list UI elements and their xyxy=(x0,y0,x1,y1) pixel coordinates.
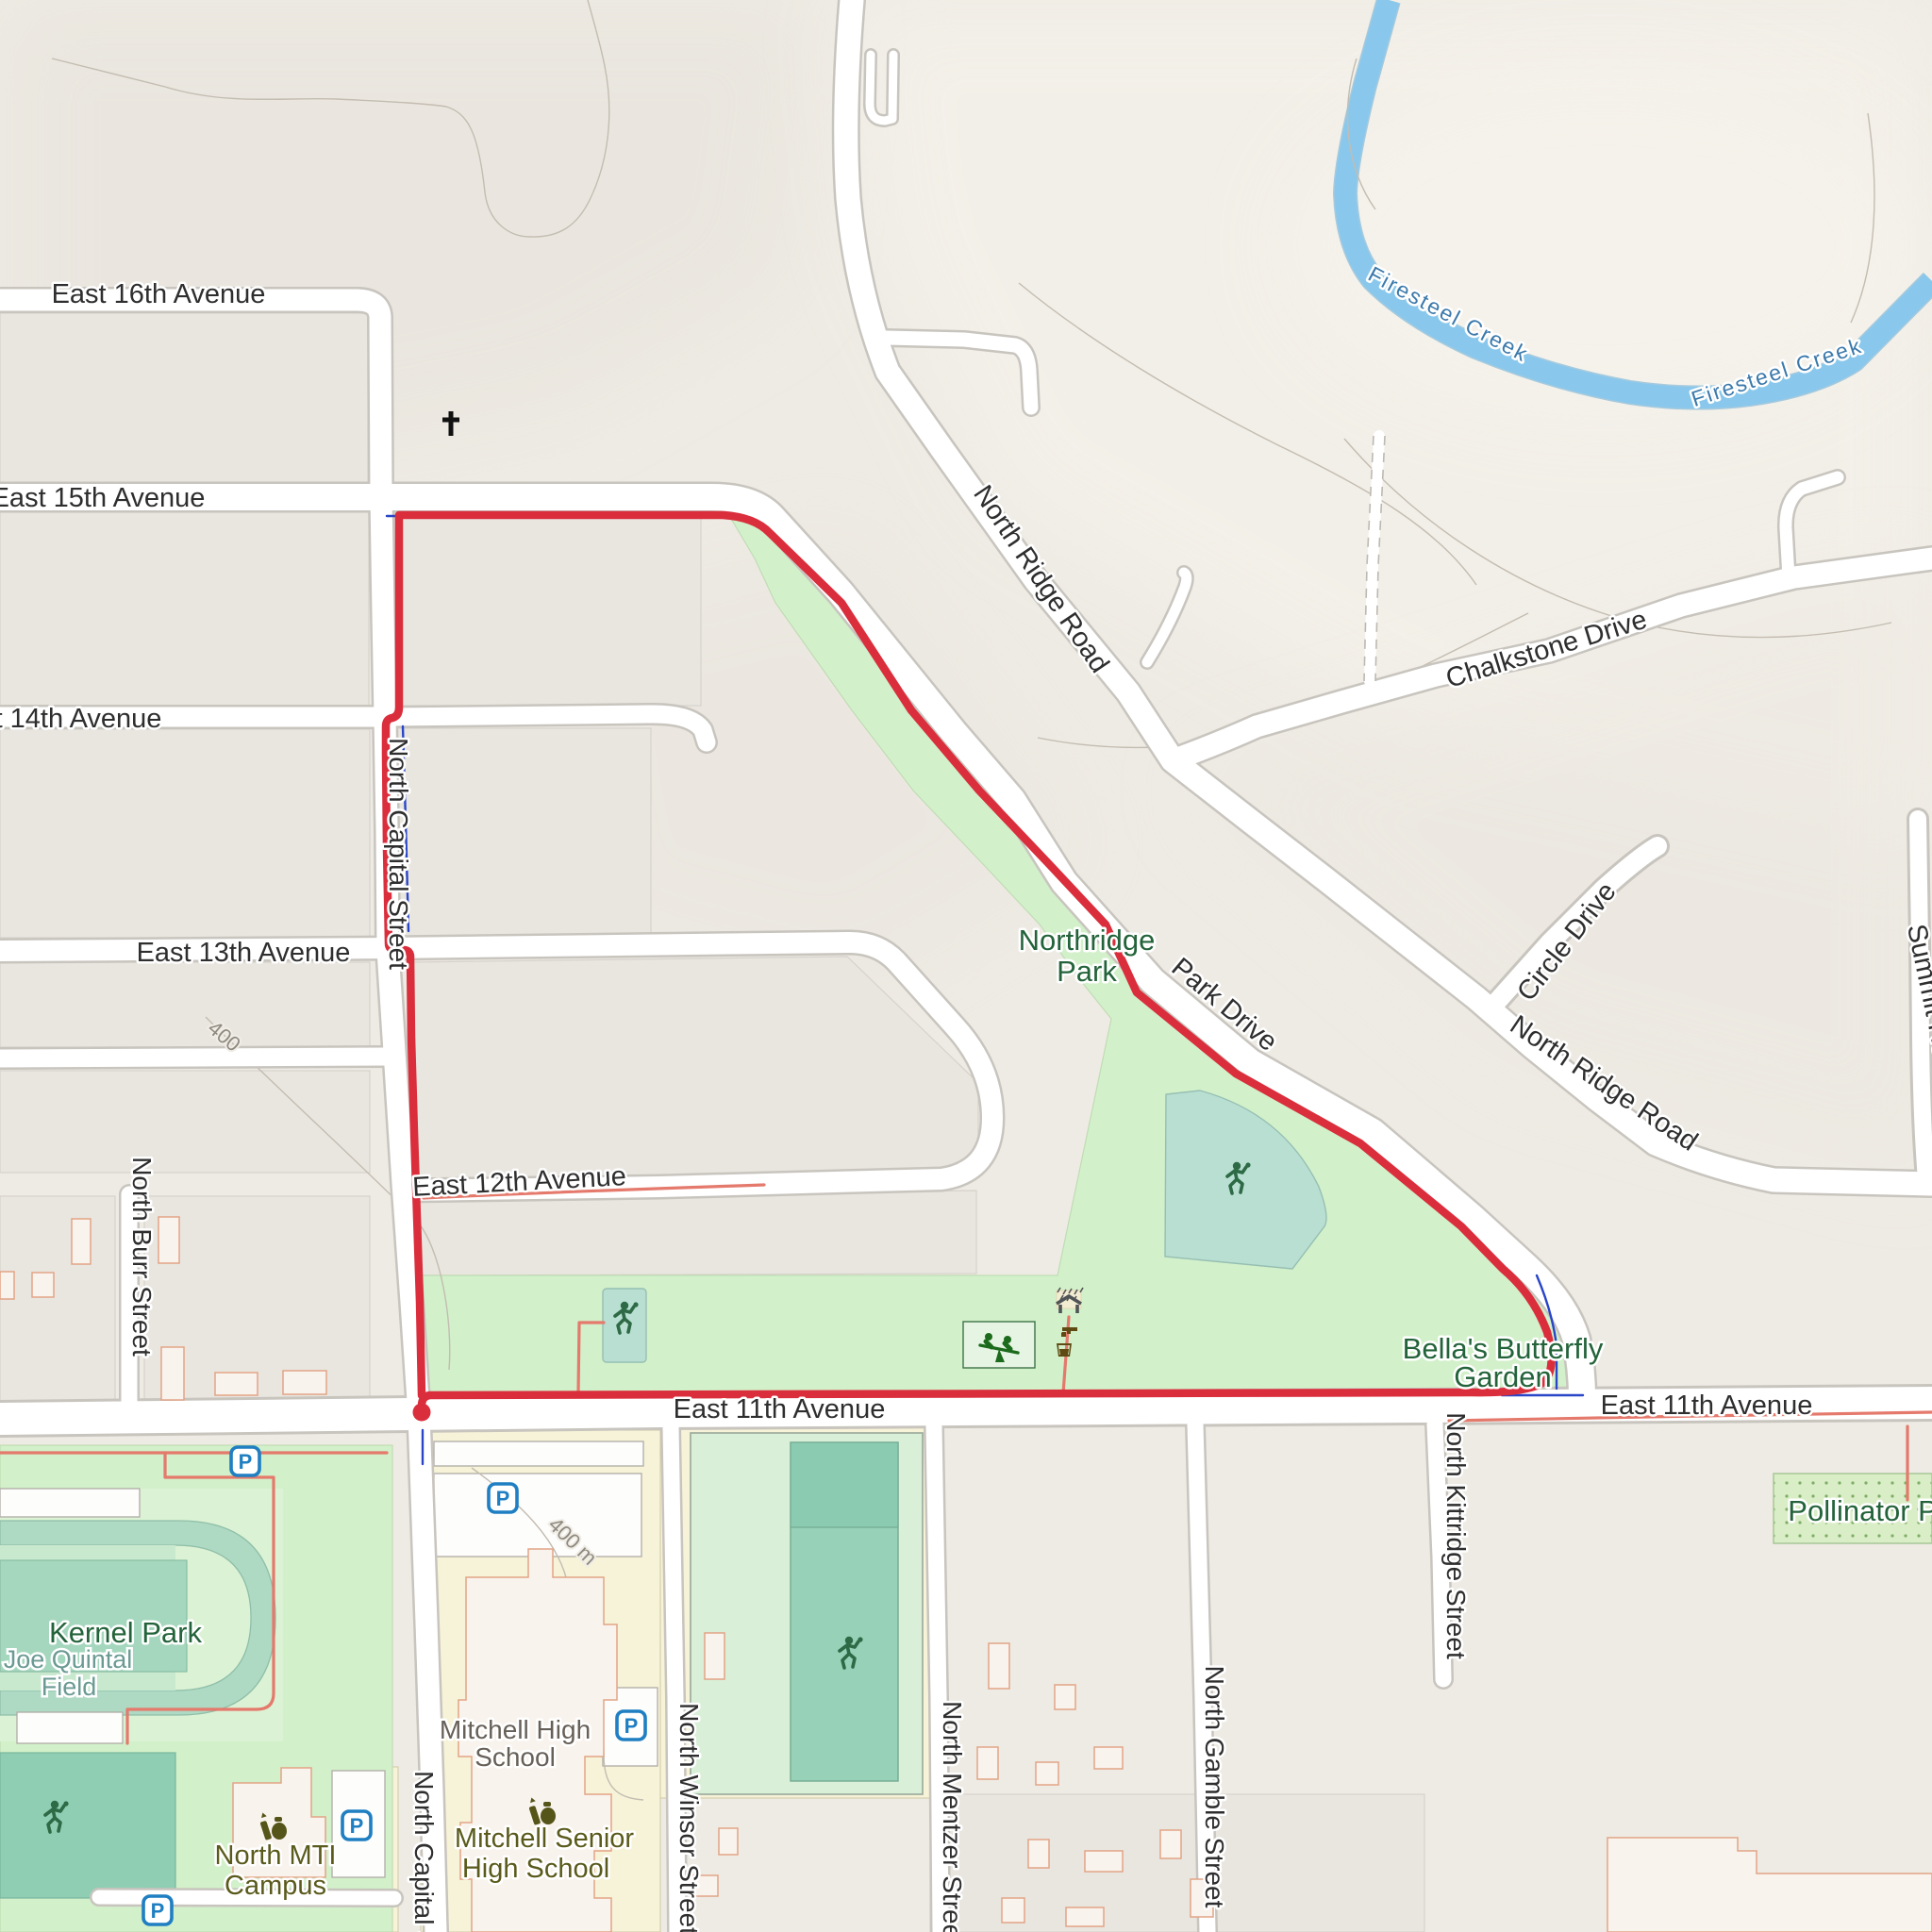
svg-text:North Capital Street: North Capital Street xyxy=(409,1771,439,1932)
svg-text:East 16th Avenue: East 16th Avenue xyxy=(52,279,266,309)
svg-text:North Mentzer Street: North Mentzer Street xyxy=(938,1701,967,1932)
svg-text:Park: Park xyxy=(1057,955,1117,988)
svg-text:Kernel Park: Kernel Park xyxy=(49,1616,202,1649)
svg-text:East 13th Avenue: East 13th Avenue xyxy=(137,938,351,968)
svg-text:School: School xyxy=(475,1742,556,1772)
svg-text:East 14th Avenue: East 14th Avenue xyxy=(0,704,161,734)
svg-text:North Winsor Street: North Winsor Street xyxy=(675,1703,704,1932)
svg-text:East 11th Avenue: East 11th Avenue xyxy=(674,1394,886,1424)
svg-text:Northridge: Northridge xyxy=(1019,924,1156,957)
svg-text:Garden: Garden xyxy=(1454,1360,1551,1393)
svg-text:Pollinator Pl: Pollinator Pl xyxy=(1788,1494,1932,1527)
svg-text:Field: Field xyxy=(42,1673,97,1701)
svg-text:Mitchell High: Mitchell High xyxy=(440,1715,591,1744)
svg-text:North Gamble Street: North Gamble Street xyxy=(1200,1666,1229,1908)
svg-text:High School: High School xyxy=(462,1854,609,1884)
svg-text:Campus: Campus xyxy=(225,1871,326,1901)
svg-text:North Burr Street: North Burr Street xyxy=(127,1157,157,1357)
svg-text:East 15th Avenue: East 15th Avenue xyxy=(0,483,205,513)
svg-text:North Capital Street: North Capital Street xyxy=(384,738,413,970)
svg-text:North Kittridge Street: North Kittridge Street xyxy=(1441,1412,1471,1659)
svg-text:North MTI: North MTI xyxy=(215,1840,337,1871)
svg-text:Joe Quintal: Joe Quintal xyxy=(4,1645,133,1674)
svg-text:Mitchell Senior: Mitchell Senior xyxy=(455,1824,635,1854)
svg-text:East 11th Avenue: East 11th Avenue xyxy=(1601,1391,1813,1421)
